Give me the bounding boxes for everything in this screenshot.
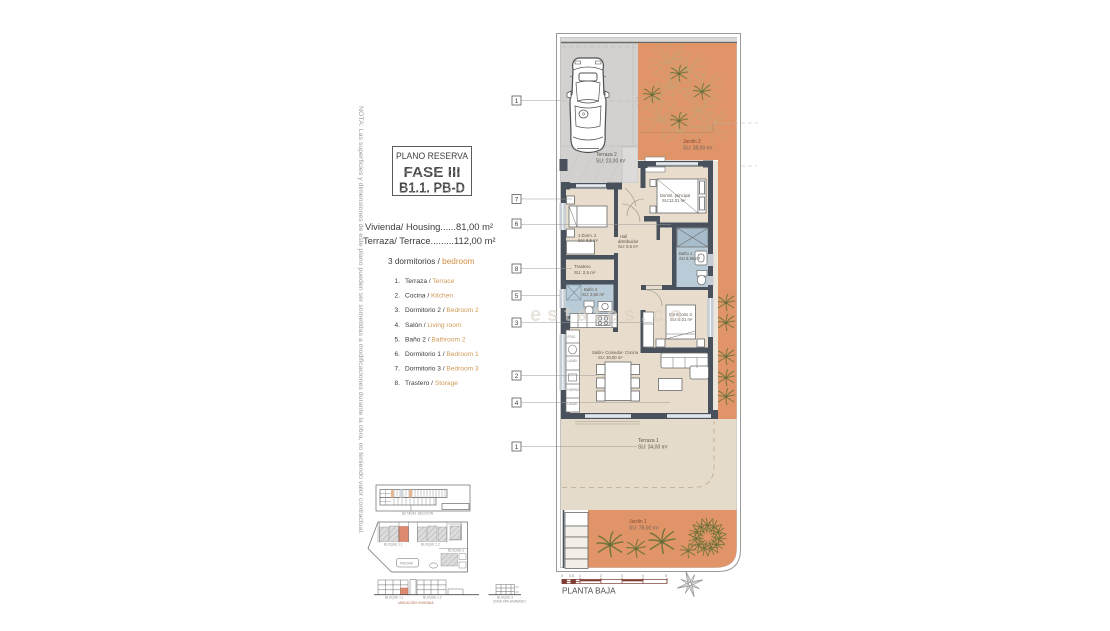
svg-text:Baño 2 / Bathroom 2: Baño 2 / Bathroom 2 bbox=[405, 336, 466, 343]
svg-text:3: 3 bbox=[515, 320, 519, 327]
svg-text:FRIG.: FRIG. bbox=[568, 335, 577, 339]
svg-text:4.: 4. bbox=[395, 322, 401, 329]
svg-text:7: 7 bbox=[515, 197, 519, 204]
svg-text:UBICACIÓN VIVIENDA: UBICACIÓN VIVIENDA bbox=[398, 600, 434, 605]
svg-text:7.: 7. bbox=[395, 366, 401, 373]
svg-text:SU: 3,50 m²: SU: 3,50 m² bbox=[582, 292, 605, 297]
svg-text:0,5: 0,5 bbox=[569, 574, 574, 578]
svg-text:NOTA: Las superficies y dimens: NOTA: Las superficies y dimensiones de e… bbox=[357, 106, 364, 534]
svg-text:Jardin 2: Jardin 2 bbox=[683, 139, 701, 145]
svg-text:BLOQUE 1.2: BLOQUE 1.2 bbox=[423, 596, 442, 600]
svg-text:FASE III: FASE III bbox=[404, 165, 461, 181]
svg-text:Vivienda/ Housing......81,00 m: Vivienda/ Housing......81,00 m² bbox=[365, 221, 493, 232]
svg-text:SU: 2,5 m²: SU: 2,5 m² bbox=[574, 270, 596, 275]
svg-text:SU: 30,00 m²: SU: 30,00 m² bbox=[598, 355, 623, 360]
svg-text:ZONA SPA-GIMNASIO: ZONA SPA-GIMNASIO bbox=[493, 600, 526, 604]
svg-text:SU:3,95 m²: SU:3,95 m² bbox=[679, 256, 701, 261]
svg-text:1: 1 bbox=[579, 574, 581, 578]
svg-text:BLOQUE 3: BLOQUE 3 bbox=[448, 549, 464, 553]
svg-text:Jardin 1: Jardin 1 bbox=[629, 519, 647, 525]
svg-text:5: 5 bbox=[665, 574, 667, 578]
svg-text:3.: 3. bbox=[395, 307, 401, 314]
svg-text:Dormitorio 3 / Bedroom 3: Dormitorio 3 / Bedroom 3 bbox=[405, 366, 479, 373]
svg-text:0: 0 bbox=[561, 574, 563, 578]
svg-text:2.: 2. bbox=[395, 293, 401, 300]
svg-text:BLOQUE 1.1: BLOQUE 1.1 bbox=[385, 596, 404, 600]
svg-text:PISCINA: PISCINA bbox=[400, 562, 414, 566]
svg-text:Terraza 1: Terraza 1 bbox=[638, 438, 659, 444]
svg-text:BLOQUE 1.1: BLOQUE 1.1 bbox=[384, 543, 403, 547]
svg-text:4: 4 bbox=[515, 400, 519, 407]
svg-text:B2 NIVEL SECCION: B2 NIVEL SECCION bbox=[402, 512, 434, 516]
svg-text:Salón / Living room: Salón / Living room bbox=[405, 322, 462, 329]
svg-text:Cocina / Kitchen: Cocina / Kitchen bbox=[405, 293, 453, 300]
svg-text:Trastero / Storage: Trastero / Storage bbox=[405, 380, 458, 387]
svg-text:Terraza 2: Terraza 2 bbox=[596, 152, 617, 158]
svg-text:SU: 78,00 m²: SU: 78,00 m² bbox=[629, 526, 659, 532]
svg-text:5: 5 bbox=[515, 293, 519, 300]
svg-text:6.: 6. bbox=[395, 351, 401, 358]
svg-text:Trastero: Trastero bbox=[574, 264, 591, 269]
svg-text:Dormitorio 1 / Bedroom 1: Dormitorio 1 / Bedroom 1 bbox=[405, 351, 479, 358]
svg-text:1.: 1. bbox=[395, 278, 401, 285]
svg-text:Terraza/ Terrace.........112,0: Terraza/ Terrace.........112,00 m² bbox=[363, 235, 496, 246]
svg-text:PLANTA BAJA: PLANTA BAJA bbox=[562, 587, 616, 596]
svg-text:SU: 9,5 m²: SU: 9,5 m² bbox=[618, 244, 639, 249]
svg-text:SU:12,01 m²: SU:12,01 m² bbox=[662, 198, 686, 203]
svg-text:3 dormitorios / bedroom: 3 dormitorios / bedroom bbox=[388, 257, 475, 266]
svg-text:SU: 8,5 m²: SU: 8,5 m² bbox=[578, 238, 599, 243]
svg-text:4: 4 bbox=[642, 574, 644, 578]
svg-text:Dormitorio 2 / Bedroom 2: Dormitorio 2 / Bedroom 2 bbox=[405, 307, 479, 314]
svg-text:SU: 23,00 m²: SU: 23,00 m² bbox=[596, 159, 626, 165]
svg-text:BLOQUE 1.2: BLOQUE 1.2 bbox=[421, 543, 440, 547]
svg-text:2: 2 bbox=[515, 373, 519, 380]
svg-text:B1.1. PB-D: B1.1. PB-D bbox=[399, 181, 465, 197]
svg-text:1: 1 bbox=[515, 98, 519, 105]
svg-text:8: 8 bbox=[515, 266, 519, 273]
svg-text:1: 1 bbox=[515, 444, 519, 451]
svg-text:3: 3 bbox=[621, 574, 623, 578]
svg-text:6: 6 bbox=[515, 221, 519, 228]
svg-text:8.: 8. bbox=[395, 380, 401, 387]
svg-text:2: 2 bbox=[600, 574, 602, 578]
svg-text:Terraza / Terrace: Terraza / Terrace bbox=[405, 278, 455, 285]
svg-text:SU: 38,00 m²: SU: 38,00 m² bbox=[683, 146, 713, 152]
svg-text:5.: 5. bbox=[395, 336, 401, 343]
svg-text:SU: 34,00 m²: SU: 34,00 m² bbox=[638, 445, 668, 451]
svg-text:HORNO: HORNO bbox=[568, 388, 580, 392]
svg-text:LAVAV: LAVAV bbox=[568, 359, 578, 363]
